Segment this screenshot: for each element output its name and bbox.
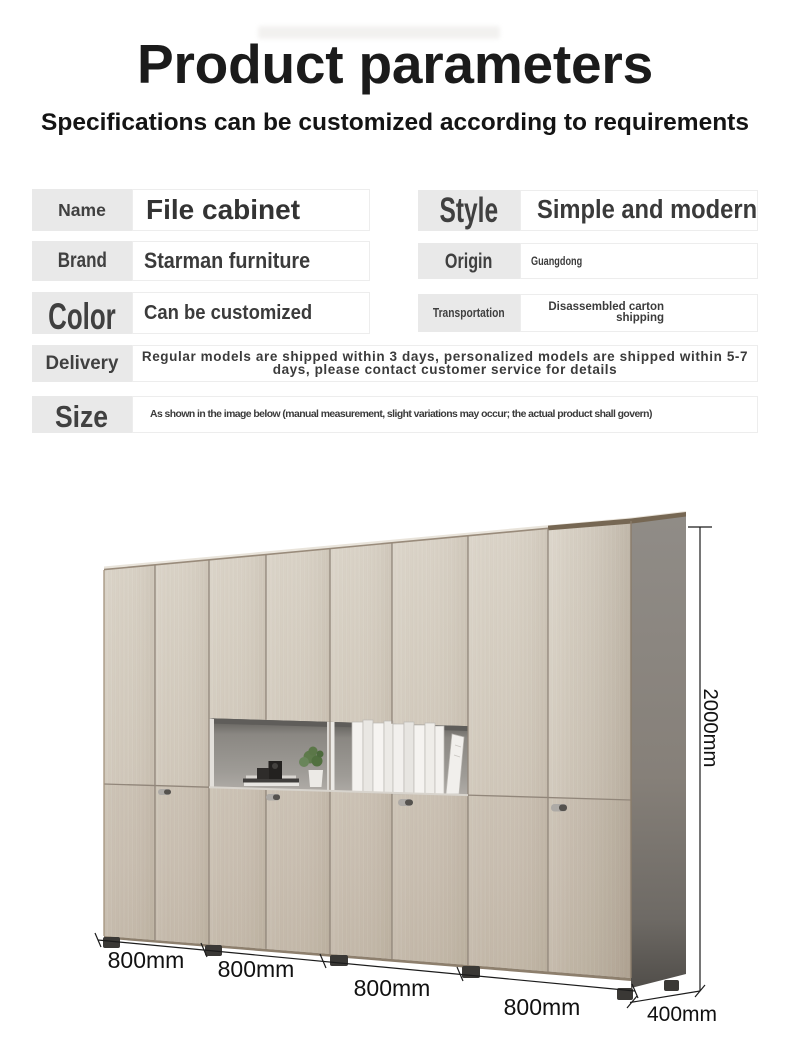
svg-text:2000mm: 2000mm [699,689,721,768]
svg-text:800mm: 800mm [354,975,431,1001]
svg-text:800mm: 800mm [218,956,295,982]
svg-text:400mm: 400mm [647,1003,717,1026]
svg-text:800mm: 800mm [108,947,185,973]
svg-text:800mm: 800mm [504,994,581,1020]
